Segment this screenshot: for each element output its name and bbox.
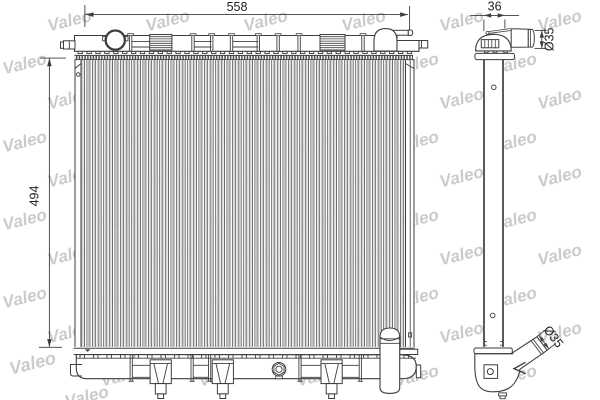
svg-text:Valeo: Valeo [46, 6, 94, 35]
svg-text:Valeo: Valeo [438, 240, 486, 269]
svg-text:Valeo: Valeo [1, 49, 49, 78]
svg-text:Valeo: Valeo [536, 240, 584, 269]
svg-text:Valeo: Valeo [438, 84, 486, 113]
svg-text:558: 558 [227, 0, 248, 14]
svg-text:Valeo: Valeo [1, 205, 49, 234]
svg-text:Valeo: Valeo [438, 318, 486, 347]
svg-text:Valeo: Valeo [1, 127, 49, 156]
svg-text:Valeo: Valeo [144, 6, 192, 35]
svg-text:494: 494 [28, 186, 42, 207]
svg-text:Valeo: Valeo [438, 6, 486, 35]
svg-text:36: 36 [488, 0, 502, 14]
svg-text:Valeo: Valeo [7, 348, 58, 379]
svg-text:Valeo: Valeo [536, 84, 584, 113]
svg-text:Valeo: Valeo [1, 283, 49, 312]
svg-text:Valeo: Valeo [242, 6, 290, 35]
svg-text:Valeo: Valeo [63, 382, 111, 400]
svg-text:Ø35: Ø35 [543, 27, 557, 51]
svg-text:Valeo: Valeo [438, 162, 486, 191]
svg-text:Valeo: Valeo [536, 162, 584, 191]
